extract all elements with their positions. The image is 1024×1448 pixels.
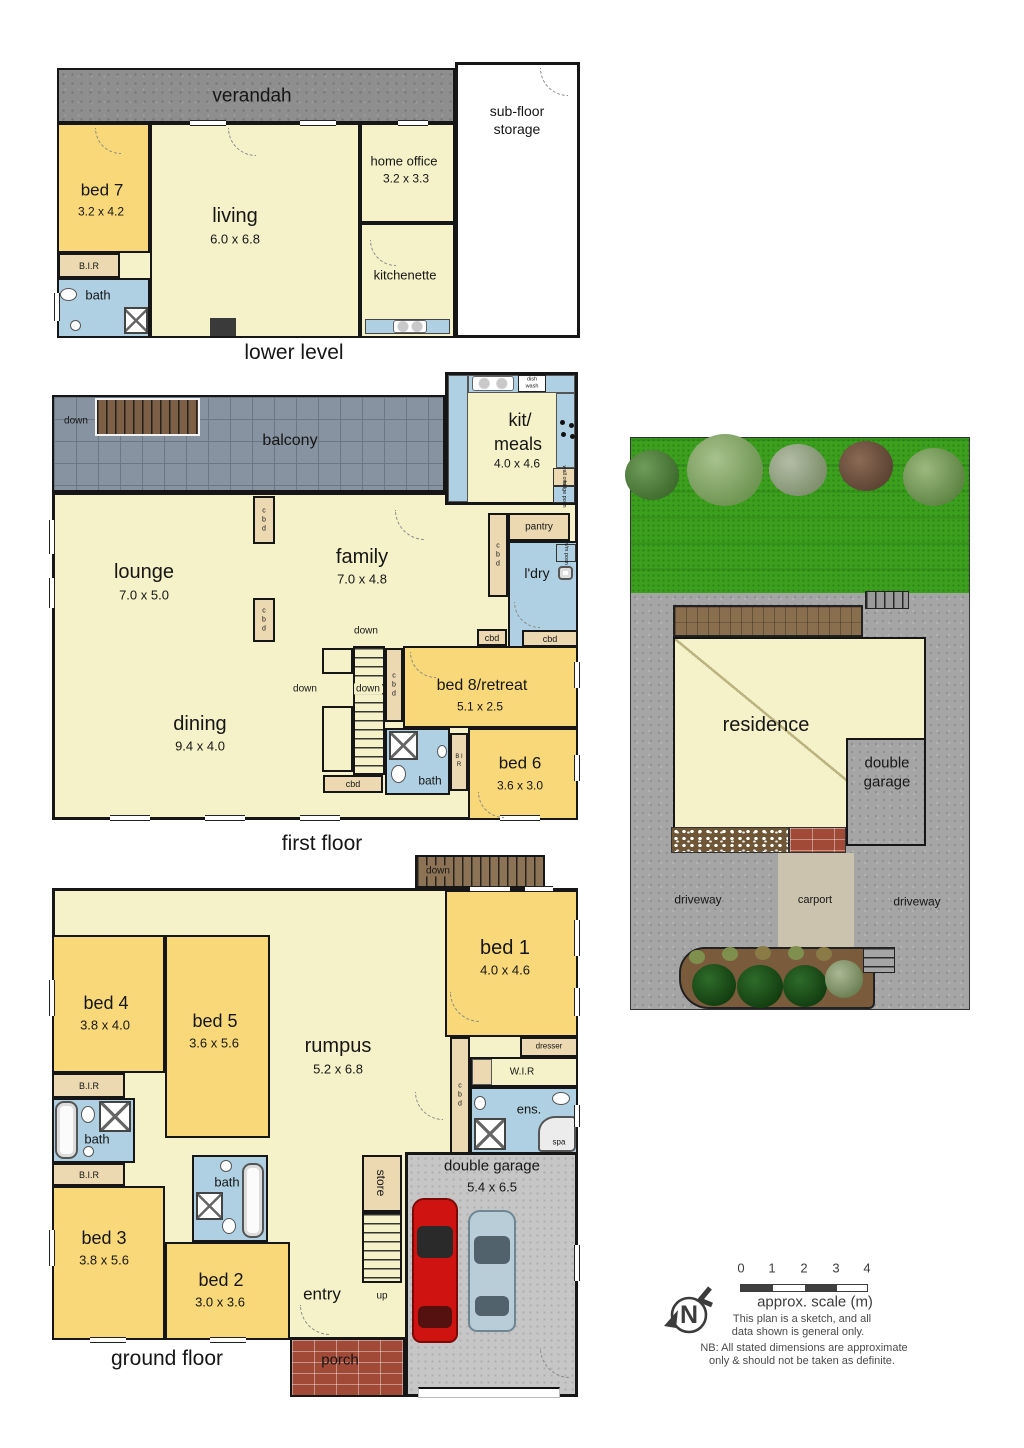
bed6-label: bed 6	[499, 753, 542, 772]
stairs-entry-up	[362, 1212, 402, 1283]
shower-ground-left	[99, 1101, 131, 1132]
home-office-dims: 3.2 x 3.3	[383, 172, 429, 185]
bush	[692, 964, 736, 1006]
subfloor-label-1: sub-floor	[490, 104, 544, 120]
stairs-down-label: down	[64, 415, 88, 426]
bush	[783, 965, 827, 1007]
shower-ensuite	[474, 1118, 506, 1150]
ensuite-label: ens.	[517, 1103, 542, 1118]
bush	[825, 960, 863, 998]
window	[205, 815, 245, 821]
window	[49, 578, 55, 608]
bed6-dims: 3.6 x 3.0	[497, 779, 543, 792]
dining-dims: 9.4 x 4.0	[175, 740, 225, 755]
bath-lower-label: bath	[85, 289, 110, 304]
scale-caption: approx. scale (m)	[757, 1295, 873, 1312]
tree	[769, 444, 827, 496]
cupboard-label: c b d	[260, 506, 269, 533]
site-brick-path	[789, 827, 846, 853]
shrub	[755, 946, 771, 960]
garage-door	[418, 1387, 560, 1398]
scale-bar	[740, 1284, 868, 1292]
disclaimer-line-4: only & should not be taken as definite.	[709, 1355, 895, 1367]
verandah-label: verandah	[212, 85, 291, 106]
balcony-stairs-down	[95, 398, 200, 436]
bathtub-left	[55, 1101, 78, 1159]
washing-machine-label: w/m posn	[563, 541, 569, 565]
cupboard-label: c b d	[494, 541, 503, 568]
wir-robe	[472, 1059, 492, 1085]
window	[500, 815, 540, 821]
cupboard-label: c b d	[390, 671, 399, 698]
lounge-dims: 7.0 x 5.0	[119, 589, 169, 604]
window	[574, 920, 580, 956]
rumpus-label: rumpus	[305, 1035, 372, 1057]
window	[49, 520, 55, 554]
bed5-label: bed 5	[192, 1011, 237, 1031]
scale-tick-2: 2	[800, 1262, 807, 1277]
site-garage-label-1: double	[864, 756, 909, 773]
store-label: store	[374, 1170, 388, 1197]
site-carport-label: carport	[798, 894, 832, 906]
living-dims: 6.0 x 6.8	[210, 233, 260, 248]
car-blue-windshield	[474, 1236, 510, 1264]
wir-label: W.I.R	[510, 1066, 534, 1077]
bir-bed4-label: B.I.R	[79, 1081, 99, 1091]
kitchen-sink	[472, 376, 514, 391]
car-blue	[468, 1210, 516, 1332]
stairs-first-floor	[353, 646, 385, 775]
window	[574, 1245, 580, 1281]
pantry-label: pantry	[525, 521, 553, 532]
cupboard-label: c b d	[260, 606, 269, 633]
toilet-ensuite	[552, 1092, 570, 1105]
stairs-down-label: down	[354, 625, 378, 636]
window	[54, 293, 60, 321]
floorplan-page: { "lower": { "title": "lower level", "ve…	[0, 0, 1024, 1448]
bed7-dims: 3.2 x 4.2	[78, 205, 124, 218]
bed5-dims: 3.6 x 5.6	[189, 1037, 239, 1052]
kitchen-bench-right	[556, 393, 575, 468]
shower-ground-mid	[196, 1192, 223, 1220]
site-plan: residence double garage carport driveway…	[630, 437, 970, 1010]
window	[574, 662, 580, 688]
laundry-trough	[558, 566, 573, 580]
shower-lower	[124, 307, 148, 334]
ground-floor-title: ground floor	[111, 1347, 223, 1371]
sink-first	[437, 745, 447, 758]
scale-tick-0: 0	[737, 1262, 744, 1277]
window	[210, 1337, 246, 1343]
car-blue-rear-window	[475, 1296, 509, 1316]
tree	[839, 441, 893, 491]
bed2-label: bed 2	[198, 1270, 243, 1290]
toilet-ground-mid	[222, 1218, 236, 1234]
window	[300, 815, 340, 821]
sink-ground-left	[83, 1146, 94, 1157]
car-red-windshield	[417, 1226, 453, 1258]
window	[525, 886, 553, 892]
bir-first-label: B I R	[455, 754, 464, 770]
bed7-label: bed 7	[81, 180, 124, 199]
bath-first-label: bath	[418, 774, 441, 787]
entry-label: entry	[303, 1284, 341, 1303]
north-label: N	[680, 1301, 698, 1329]
garage-dims: 5.4 x 6.5	[467, 1181, 517, 1196]
scale-bar-segment	[805, 1285, 837, 1291]
stairs-down-label: down	[354, 683, 382, 694]
bir-bed3-label: B.I.R	[79, 1170, 99, 1180]
site-steps	[863, 947, 895, 973]
cooktop	[560, 420, 565, 425]
rumpus-dims: 5.2 x 6.8	[313, 1063, 363, 1078]
car-red	[412, 1198, 458, 1343]
first-floor-title: first floor	[282, 832, 363, 856]
window	[300, 120, 336, 126]
stair-landing-2	[322, 706, 353, 772]
family-dims: 7.0 x 4.8	[337, 573, 387, 588]
porch-label: porch	[321, 1353, 359, 1370]
bush	[737, 965, 783, 1008]
fridge-label: fridge posn	[561, 480, 567, 507]
disclaimer-line-1: This plan is a sketch, and all	[733, 1313, 871, 1325]
site-deck-stairs	[865, 591, 909, 609]
bath-left-label: bath	[84, 1133, 109, 1148]
bed4-label: bed 4	[83, 993, 128, 1013]
shower-first	[389, 731, 418, 760]
kit-dims: 4.0 x 4.6	[494, 457, 540, 470]
bed3-label: bed 3	[81, 1228, 126, 1248]
shrub	[788, 946, 804, 960]
tree	[687, 434, 763, 506]
garage-label: double garage	[444, 1159, 540, 1176]
shrub	[689, 950, 705, 964]
window	[49, 1230, 55, 1266]
window	[190, 120, 226, 126]
kit-label-1: kit/	[508, 410, 531, 430]
bed8-label: bed 8/retreat	[437, 677, 528, 695]
site-residence-label: residence	[723, 714, 810, 736]
site-garage-label-2: garage	[864, 775, 911, 792]
scale-tick-1: 1	[768, 1262, 775, 1277]
site-deck	[673, 605, 863, 637]
home-office-label: home office	[371, 155, 438, 170]
shrub	[816, 947, 832, 961]
site-driveway-left-label: driveway	[674, 893, 721, 906]
bed2-dims: 3.0 x 3.6	[195, 1296, 245, 1311]
site-flower-bed	[671, 827, 789, 853]
bed4-dims: 3.8 x 4.0	[80, 1019, 130, 1034]
laundry-label: l'dry	[524, 566, 549, 582]
scale-bar-segment	[741, 1285, 773, 1291]
scale-tick-3: 3	[832, 1262, 839, 1277]
window	[574, 755, 580, 781]
window	[90, 1337, 126, 1343]
sink-ensuite	[474, 1096, 486, 1110]
cupboard-label: cbd	[485, 633, 500, 643]
tree	[903, 448, 965, 506]
scale-tick-4: 4	[863, 1262, 870, 1277]
bathtub-mid	[242, 1163, 264, 1238]
stairs-down-label: down	[291, 683, 319, 694]
bed1-dims: 4.0 x 4.6	[480, 964, 530, 979]
window	[49, 980, 55, 1016]
disclaimer-line-3: NB: All stated dimensions are approximat…	[700, 1342, 907, 1354]
disclaimer-line-2: data shown is general only.	[732, 1326, 865, 1338]
balcony-first-label: balcony	[262, 432, 317, 450]
window	[574, 1105, 580, 1127]
toilet-first	[391, 765, 406, 783]
bed8-dims: 5.1 x 2.5	[457, 700, 503, 713]
window	[470, 886, 510, 892]
kitchenette-sink	[393, 320, 427, 333]
living-label: living	[212, 205, 258, 227]
stairs-down-label: down	[424, 865, 452, 876]
bath-mid-label: bath	[214, 1176, 239, 1191]
spa-label: spa	[553, 1139, 566, 1148]
shrub	[722, 947, 738, 961]
toilet-ground-left	[81, 1106, 95, 1123]
dining-label: dining	[173, 713, 226, 735]
tree	[625, 450, 679, 500]
family-label: family	[336, 546, 388, 568]
cupboard-label: cbd	[543, 634, 558, 644]
fireplace	[210, 318, 236, 336]
subfloor-label-2: storage	[494, 122, 541, 138]
window	[398, 120, 428, 126]
car-red-rear-window	[418, 1306, 452, 1328]
site-driveway-right-label: driveway	[893, 895, 940, 908]
window	[574, 988, 580, 1016]
room-bed-2	[165, 1242, 290, 1340]
kitchenette-label: kitchenette	[374, 269, 437, 284]
toilet-lower	[60, 288, 77, 301]
cupboard-label: c b d	[456, 1081, 465, 1108]
kitchen-bench-left	[448, 375, 468, 502]
dresser-label: dresser	[536, 1043, 563, 1052]
dishwasher-label: dish wash	[520, 376, 544, 389]
bed7-bir-label: B.I.R	[79, 261, 99, 271]
window	[110, 815, 150, 821]
sink-lower	[70, 320, 81, 331]
bed1-label: bed 1	[480, 937, 530, 959]
lounge-label: lounge	[114, 561, 174, 583]
stairs-up-label: up	[376, 1290, 387, 1301]
kit-label-2: meals	[494, 434, 542, 454]
cupboard-label: cbd	[346, 779, 361, 789]
sink-ground-mid	[220, 1160, 232, 1172]
lower-level-title: lower level	[244, 341, 343, 365]
bed3-dims: 3.8 x 5.6	[79, 1254, 129, 1269]
stair-landing-1	[322, 648, 353, 674]
